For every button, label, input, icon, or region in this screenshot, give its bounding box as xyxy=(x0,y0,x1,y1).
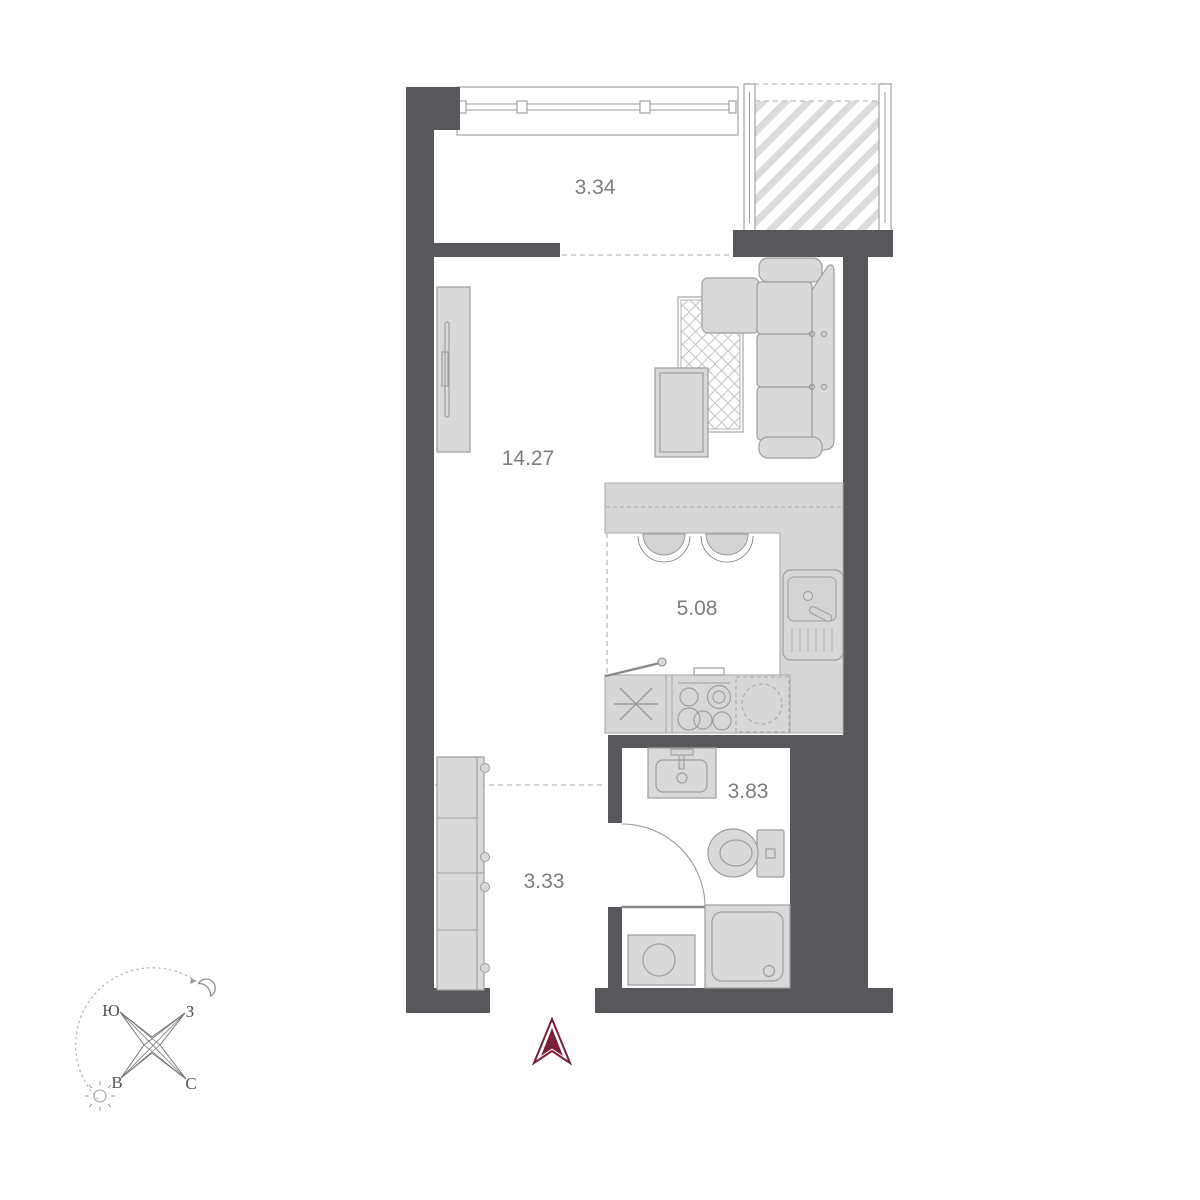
sofa-seat-cushion xyxy=(757,282,812,334)
wall-left-head xyxy=(406,87,460,130)
sun-icon xyxy=(85,1081,115,1111)
balcony xyxy=(744,84,892,231)
wall-bathroom-left-lower xyxy=(608,907,622,988)
washing-machine xyxy=(628,935,695,985)
wall-left-foot xyxy=(406,988,490,1013)
sun-path-arc xyxy=(76,968,191,1099)
wall-loggia-stub xyxy=(434,243,560,257)
sofa-seat-cushion xyxy=(757,334,812,387)
wall-bathroom-top xyxy=(608,735,790,748)
wardrobe-handle xyxy=(481,964,490,973)
toilet-bowl xyxy=(708,829,758,877)
compass-label-north: С xyxy=(185,1074,196,1093)
toilet-tank xyxy=(757,830,784,877)
faucet xyxy=(671,749,693,755)
coffee-table xyxy=(655,368,708,457)
sofa-seat-cushion xyxy=(757,387,812,440)
sofa-corner-seat xyxy=(702,278,759,333)
wardrobe-handle xyxy=(481,883,490,892)
wardrobe-handle xyxy=(481,764,490,773)
sink-drain xyxy=(804,592,813,601)
bar-stool xyxy=(638,534,690,562)
sofa-armrest-bottom xyxy=(759,437,822,458)
compass-rose: Ю З В С xyxy=(76,968,216,1111)
compass-label-west: З xyxy=(186,1002,195,1021)
sofa-backrest xyxy=(812,265,834,450)
shower-tray xyxy=(705,905,790,988)
kitchen-flip-door xyxy=(606,658,666,676)
room-area-label-kitchen: 5.08 xyxy=(677,597,718,620)
floor-plan-page: 3.34 14.27 5.08 3.83 3.33 Ю З В С xyxy=(0,0,1200,1200)
faucet-stem xyxy=(679,755,684,769)
toilet xyxy=(708,829,784,877)
room-area-label-bathroom: 3.83 xyxy=(728,780,769,803)
loggia-window xyxy=(457,87,738,135)
moon-icon xyxy=(199,979,216,996)
wall-bottom-right xyxy=(595,988,893,1013)
sofa-armrest-top xyxy=(759,258,822,282)
sun-path-arrowhead xyxy=(190,978,197,984)
compass-label-east: В xyxy=(111,1073,122,1092)
room-area-label-loggia: 3.34 xyxy=(575,176,616,199)
compass-star xyxy=(120,1012,186,1079)
bathroom-door xyxy=(622,824,705,907)
tv-console xyxy=(437,287,470,452)
balcony-hatch-area xyxy=(755,101,879,230)
wardrobe xyxy=(437,757,490,990)
bar-stool xyxy=(701,534,753,562)
wall-bathroom-left-upper xyxy=(608,748,622,823)
kitchen-lower-counter xyxy=(605,658,790,733)
wall-shaft-block xyxy=(790,735,868,1013)
wall-left xyxy=(406,87,434,1013)
compass-label-south: Ю xyxy=(102,1001,119,1020)
wall-top-right-bar xyxy=(733,230,893,257)
entrance-arrow xyxy=(534,1019,570,1063)
room-area-label-hallway: 3.33 xyxy=(524,870,565,893)
wardrobe-handle xyxy=(481,853,490,862)
bathroom-sink xyxy=(648,748,716,798)
floor-plan: 3.34 14.27 5.08 3.83 3.33 Ю З В С xyxy=(0,0,1200,1200)
room-area-label-living-room: 14.27 xyxy=(502,447,555,470)
